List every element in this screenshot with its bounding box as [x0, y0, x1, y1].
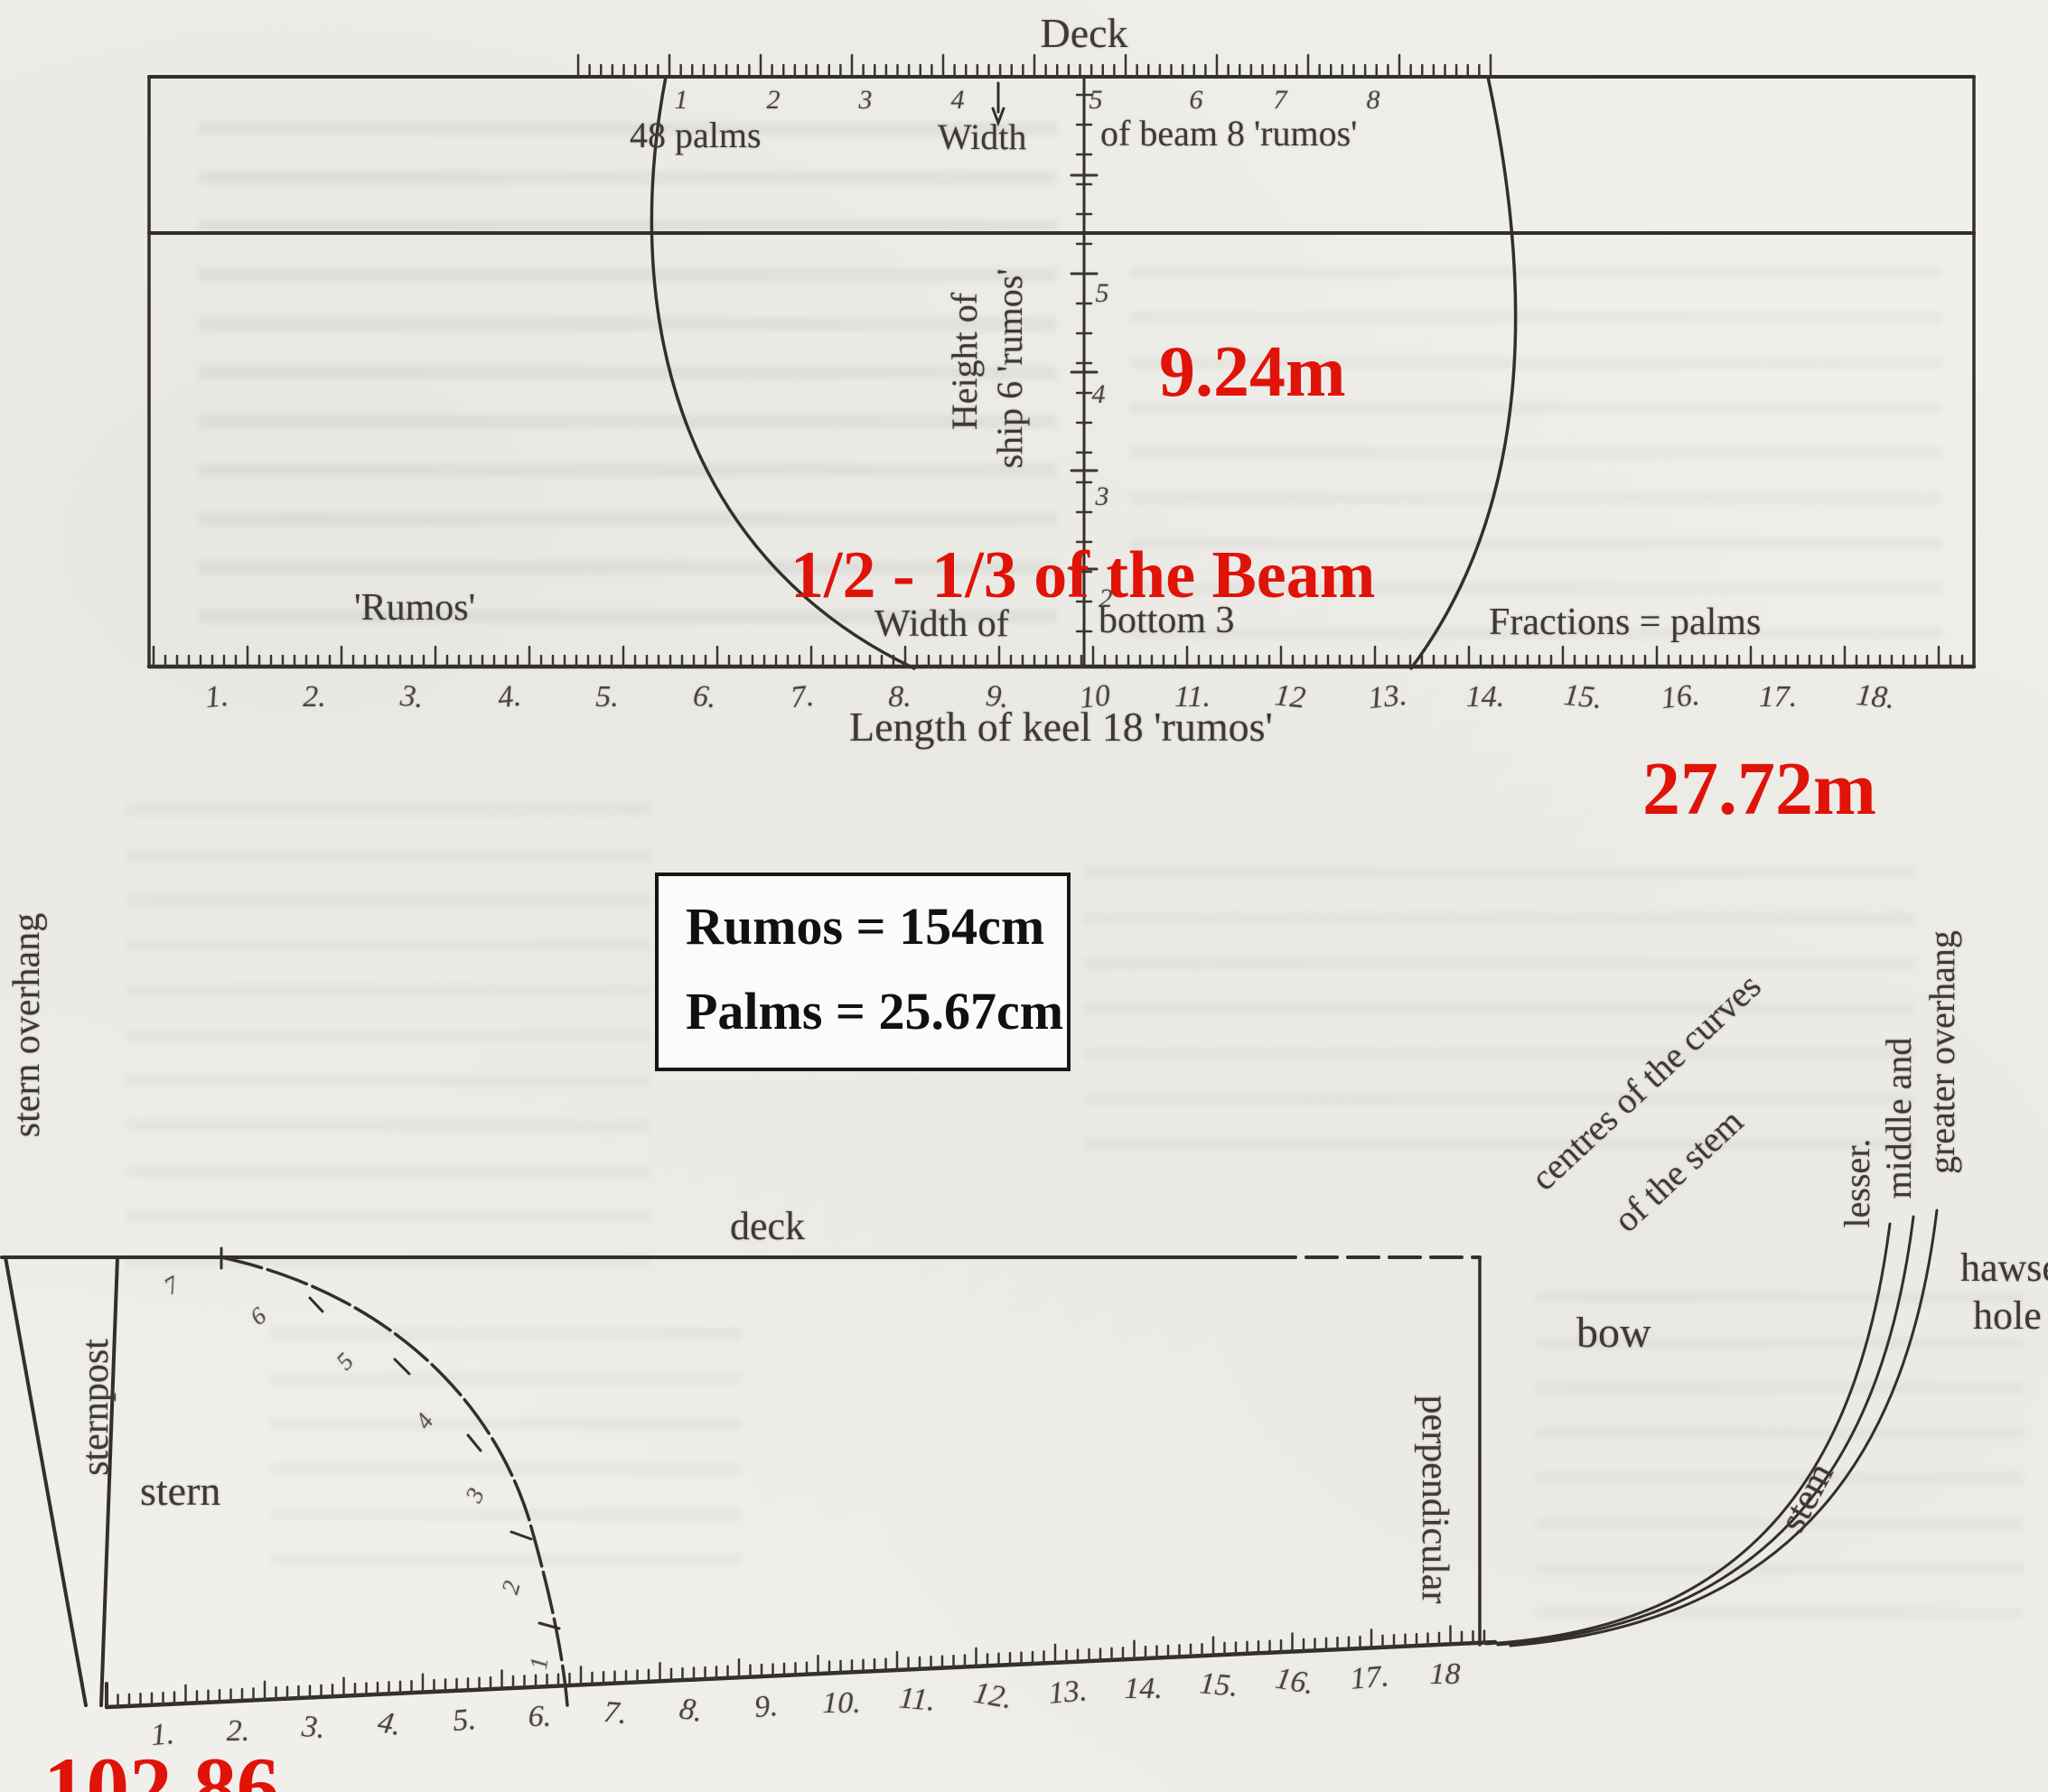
- bow-label: bow: [1576, 1311, 1651, 1355]
- annotation-height-meters: 9.24m: [1159, 336, 1346, 408]
- sternpost-label: sternpost: [77, 1339, 115, 1476]
- stern-curve-ticks: [221, 1248, 559, 1629]
- height-tick-number: 3: [1096, 481, 1109, 512]
- bottom-keel-tick-number: 12.: [970, 1675, 1014, 1716]
- top-keel-tick-number: 7.: [789, 679, 815, 715]
- stem-curve-greater: [1510, 1210, 1937, 1646]
- top-keel-tick-number: 5.: [595, 680, 619, 714]
- lesser-overhang-label: lesser.: [1839, 1139, 1875, 1228]
- beam-tick-number: 8: [1367, 85, 1380, 116]
- beam-tick-number: 1: [675, 85, 688, 116]
- height-tick-number: 4: [1092, 379, 1106, 410]
- top-keel-tick-number: 14.: [1466, 680, 1505, 714]
- deck-label: Deck: [1040, 13, 1127, 54]
- top-keel-tick-number: 8.: [888, 680, 912, 714]
- rumos-label: 'Rumos': [354, 589, 475, 627]
- fractions-palms-label: Fractions = palms: [1489, 603, 1761, 641]
- sternpost-line: [101, 1257, 117, 1705]
- top-keel-tick-number: 18.: [1855, 678, 1896, 716]
- top-keel-tick-number: 11.: [1174, 680, 1211, 714]
- bottom-keel-tick-number: 2.: [227, 1714, 250, 1749]
- top-keel-tick-number: 16.: [1660, 678, 1701, 716]
- deck-label-bottom: deck: [730, 1207, 805, 1246]
- top-keel-tick-number: 1.: [203, 679, 229, 715]
- bottom-keel-tick-number: 6.: [528, 1700, 552, 1734]
- height-of-ship-label-line1: Height of: [947, 293, 983, 430]
- height-of-ship-label-line2: ship 6 'rumos': [992, 268, 1028, 468]
- top-keel-ruler-ticks: [154, 647, 1962, 667]
- bottom-keel-tick-number: 7.: [603, 1695, 629, 1731]
- bottom-keel-tick-number: 13.: [1047, 1674, 1089, 1712]
- legend-palms-value: Palms = 25.67cm: [686, 981, 1063, 1041]
- hawse-hole-label-line2: hole: [1973, 1296, 2042, 1336]
- stern-overhang-line: [5, 1257, 86, 1705]
- legend-rumos-value: Rumos = 154cm: [686, 896, 1044, 957]
- bottom-keel-tick-number: 1.: [150, 1717, 176, 1753]
- height-tick-number: 2: [1099, 583, 1113, 614]
- beam-tick-number: 3: [859, 85, 873, 116]
- middle-overhang-label: middle and: [1881, 1038, 1917, 1199]
- width-label: Width: [938, 119, 1026, 155]
- bottom-keel-tick-number: 9.: [753, 1689, 780, 1725]
- stern-overhang-label: stern overhang: [8, 913, 46, 1137]
- top-keel-tick-number: 6.: [691, 679, 717, 715]
- scanned-page: Deck 48 palms Width of beam 8 'rumos' He…: [0, 0, 2048, 1792]
- stem-curve-lesser: [1486, 1224, 1890, 1644]
- bottom-keel-tick-number: 17.: [1349, 1659, 1390, 1697]
- palms-48-label: 48 palms: [630, 117, 762, 154]
- top-keel-tick-number: 15.: [1562, 678, 1604, 716]
- annotation-keel-meters: 27.72m: [1642, 751, 1876, 827]
- bottom-keel-tick-number: 16.: [1272, 1662, 1315, 1703]
- top-keel-tick-number: 17.: [1759, 680, 1798, 714]
- top-keel-tick-number: 10: [1078, 678, 1112, 715]
- top-keel-tick-number: 13.: [1367, 678, 1408, 716]
- hawse-hole-label-line1: hawse: [1960, 1248, 2048, 1288]
- stern-curve: [221, 1257, 567, 1705]
- top-keel-tick-number: 4.: [496, 679, 522, 715]
- bottom-keel-tick-number: 3.: [301, 1710, 327, 1746]
- beam-label: of beam 8 'rumos': [1100, 116, 1357, 152]
- beam-tick-number: 6: [1190, 85, 1203, 116]
- beam-tick-number: 7: [1274, 85, 1287, 116]
- top-keel-tick-number: 9.: [984, 679, 1010, 715]
- bottom-keel-tick-number: 10.: [822, 1686, 861, 1721]
- beam-tick-number: 5: [1089, 85, 1103, 116]
- bottom-keel-tick-number: 5.: [452, 1703, 478, 1739]
- top-keel-tick-number: 2.: [303, 680, 326, 714]
- beam-ruler-ticks: [578, 55, 1491, 77]
- greater-overhang-label: greater overhang: [1924, 930, 1960, 1174]
- bottom-keel-tick-number: 15.: [1198, 1666, 1239, 1704]
- hull-curve-right: [1411, 77, 1516, 668]
- top-keel-tick-number: 12: [1273, 678, 1307, 715]
- bottom-keel-tick-number: 11.: [897, 1681, 936, 1718]
- perpendicular-label: perpendicular: [1416, 1395, 1454, 1604]
- beam-tick-number: 2: [767, 85, 781, 116]
- height-tick-number: 5: [1096, 278, 1109, 309]
- bottom-keel-tick-number: 14.: [1124, 1672, 1163, 1706]
- bottom-keel-tick-number: 18: [1430, 1657, 1461, 1692]
- beam-tick-number: 4: [951, 85, 965, 116]
- top-keel-tick-number: 3.: [398, 679, 425, 715]
- conversion-legend-box: Rumos = 154cm Palms = 25.67cm: [655, 873, 1071, 1071]
- annotation-beam-fraction: 1/2 - 1/3 of the Beam: [790, 542, 1375, 609]
- stern-label: stern: [140, 1470, 220, 1512]
